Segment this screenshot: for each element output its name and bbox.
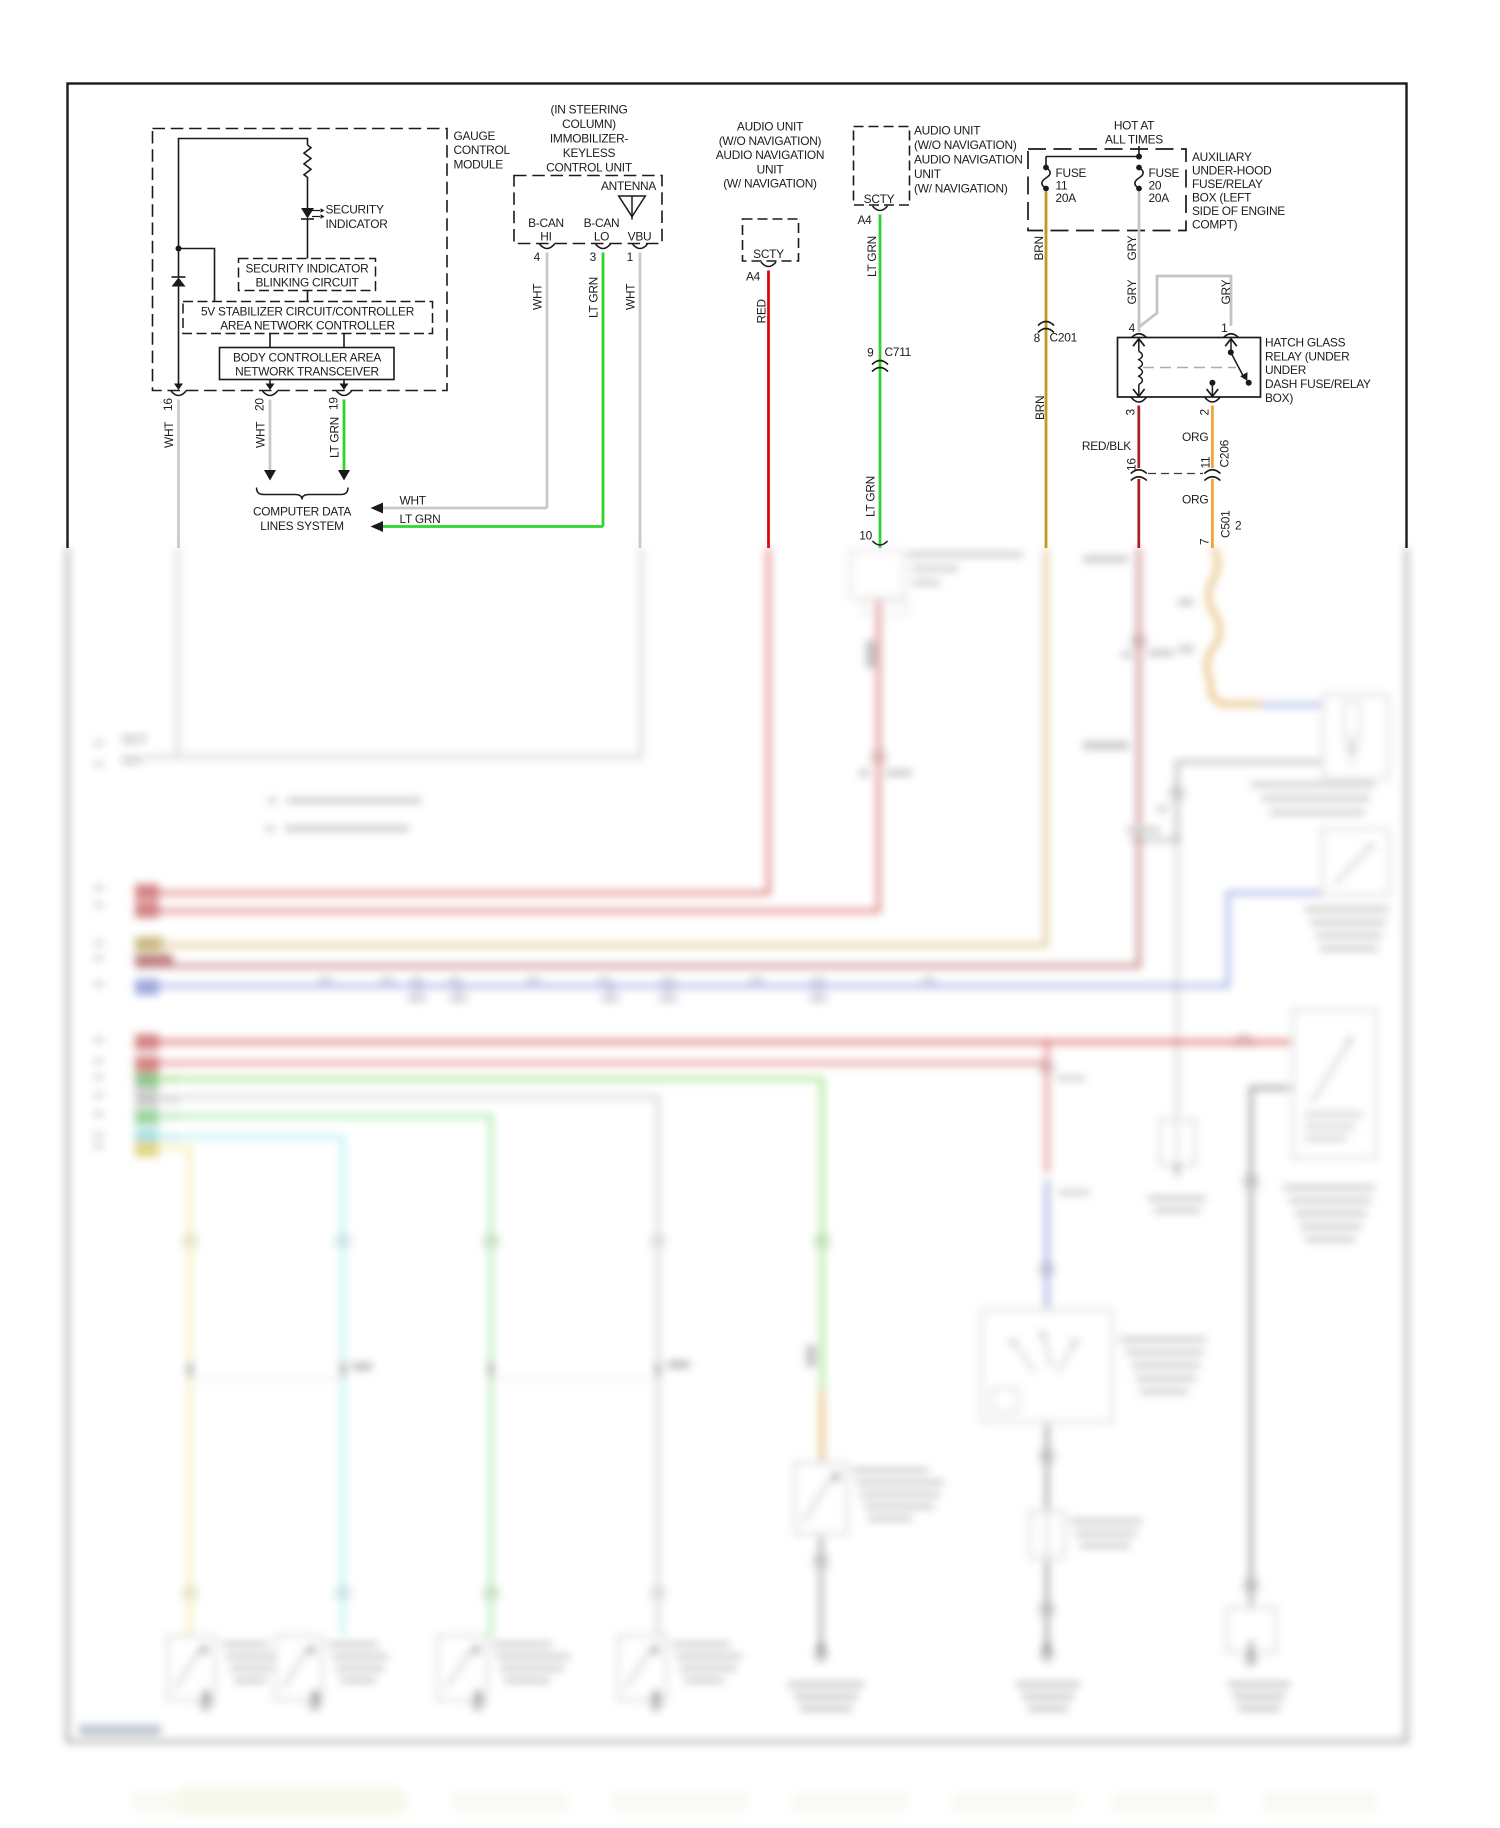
svg-text:BRN: BRN [1033,396,1047,420]
svg-text:C206: C206 [1218,439,1232,467]
svg-text:WHT: WHT [254,422,268,448]
svg-text:RED: RED [755,298,769,323]
svg-text:UNDER-HOOD: UNDER-HOOD [1192,164,1272,178]
svg-text:BOX (LEFT: BOX (LEFT [1192,191,1251,205]
svg-text:WHT: WHT [531,284,545,310]
svg-text:GRY: GRY [1125,279,1139,304]
svg-text:RED/BLK: RED/BLK [1082,439,1131,453]
svg-text:3: 3 [590,250,597,264]
svg-text:AUDIO NAVIGATION: AUDIO NAVIGATION [914,153,1023,167]
svg-text:9: 9 [867,346,874,360]
svg-text:16: 16 [161,398,175,411]
svg-text:HATCH GLASS: HATCH GLASS [1265,336,1346,350]
svg-text:LO: LO [594,230,609,244]
svg-text:MODULE: MODULE [454,157,504,171]
svg-text:KEYLESS: KEYLESS [563,146,616,160]
svg-text:ORG: ORG [1182,430,1208,444]
svg-text:5V STABILIZER CIRCUIT/CONTROLL: 5V STABILIZER CIRCUIT/CONTROLLER [201,305,415,319]
svg-text:AREA NETWORK CONTROLLER: AREA NETWORK CONTROLLER [220,319,395,333]
svg-text:AUDIO UNIT: AUDIO UNIT [737,120,803,134]
svg-text:AUDIO NAVIGATION: AUDIO NAVIGATION [716,148,825,162]
svg-text:GAUGE: GAUGE [454,129,496,143]
svg-text:AUXILIARY: AUXILIARY [1192,150,1252,164]
svg-text:BLINKING CIRCUIT: BLINKING CIRCUIT [255,276,358,290]
svg-text:HOT AT: HOT AT [1114,119,1154,133]
svg-text:UNDER: UNDER [1265,363,1307,377]
svg-text:FUSE/RELAY: FUSE/RELAY [1192,177,1263,191]
svg-text:10: 10 [859,529,872,543]
svg-text:(W/O NAVIGATION): (W/O NAVIGATION) [719,134,822,148]
svg-text:1: 1 [1221,321,1228,335]
svg-text:ALL TIMES: ALL TIMES [1105,133,1163,147]
svg-text:IMMOBILIZER-: IMMOBILIZER- [550,132,629,146]
svg-text:COLUMN): COLUMN) [562,117,616,131]
svg-text:WHT: WHT [122,734,147,746]
svg-text:LT GRN: LT GRN [864,476,878,517]
svg-text:WHT: WHT [162,422,176,448]
svg-text:B-CAN: B-CAN [528,216,564,230]
svg-text:CONTROL UNIT: CONTROL UNIT [546,161,632,175]
svg-text:BODY CONTROLLER AREA: BODY CONTROLLER AREA [233,351,381,365]
svg-text:ORG: ORG [1182,493,1208,507]
svg-text:BOX): BOX) [1265,391,1293,405]
svg-text:19: 19 [327,397,341,410]
svg-text:INDICATOR: INDICATOR [326,217,389,231]
svg-text:SCTY: SCTY [753,247,784,261]
svg-text:C201: C201 [1050,331,1078,345]
svg-text:WHT: WHT [400,494,426,508]
svg-text:RELAY (UNDER: RELAY (UNDER [1265,350,1350,364]
svg-text:GRY: GRY [1125,235,1139,260]
svg-text:COMPUTER DATA: COMPUTER DATA [253,505,351,519]
svg-text:UNIT: UNIT [914,167,941,181]
svg-text:16: 16 [1125,458,1139,471]
svg-text:(W/ NAVIGATION): (W/ NAVIGATION) [723,177,817,191]
svg-text:LT GRN: LT GRN [400,512,441,526]
svg-text:ANTENNA: ANTENNA [601,179,656,193]
svg-text:1: 1 [627,250,634,264]
svg-text:C501: C501 [1219,510,1233,538]
svg-text:UNIT: UNIT [757,162,784,176]
svg-text:WHT: WHT [624,284,638,310]
svg-text:B-CAN: B-CAN [584,216,620,230]
svg-text:LT GRN: LT GRN [865,236,879,277]
svg-text:GRY: GRY [1219,279,1233,304]
svg-text:(W/O NAVIGATION): (W/O NAVIGATION) [914,138,1017,152]
svg-text:A4: A4 [857,213,872,227]
svg-text:C711: C711 [885,345,912,359]
svg-text:11: 11 [1199,456,1213,468]
svg-text:SIDE OF ENGINE: SIDE OF ENGINE [1192,204,1285,218]
svg-text:4: 4 [534,250,541,264]
svg-text:(W/ NAVIGATION): (W/ NAVIGATION) [914,182,1008,196]
svg-text:SECURITY: SECURITY [326,203,384,217]
svg-text:LT GRN: LT GRN [587,277,601,318]
svg-text:COMPT): COMPT) [1192,218,1238,232]
svg-text:DASH FUSE/RELAY: DASH FUSE/RELAY [1265,377,1371,391]
svg-text:LINES SYSTEM: LINES SYSTEM [260,519,344,533]
svg-text:SECURITY INDICATOR: SECURITY INDICATOR [245,262,369,276]
svg-text:LT GRN: LT GRN [328,417,342,458]
svg-text:2: 2 [1235,519,1242,533]
svg-text:HI: HI [540,230,551,244]
svg-text:(IN STEERING: (IN STEERING [551,103,628,117]
svg-text:CONTROL: CONTROL [454,143,511,157]
svg-text:8: 8 [1034,331,1041,345]
svg-text:A4: A4 [746,270,761,284]
svg-text:SCTY: SCTY [864,192,895,206]
svg-text:2: 2 [1198,409,1212,416]
svg-text:BRN: BRN [1032,236,1046,260]
svg-text:7: 7 [1198,538,1212,545]
svg-text:NETWORK TRANSCEIVER: NETWORK TRANSCEIVER [235,365,379,379]
svg-text:AUDIO UNIT: AUDIO UNIT [914,124,980,138]
svg-text:VBU: VBU [628,230,652,244]
svg-text:20: 20 [253,398,267,411]
svg-text:3: 3 [1124,409,1138,416]
svg-text:20A: 20A [1149,191,1170,205]
svg-text:4: 4 [1129,321,1136,335]
svg-text:20A: 20A [1056,191,1077,205]
svg-text:WHT: WHT [122,755,147,767]
